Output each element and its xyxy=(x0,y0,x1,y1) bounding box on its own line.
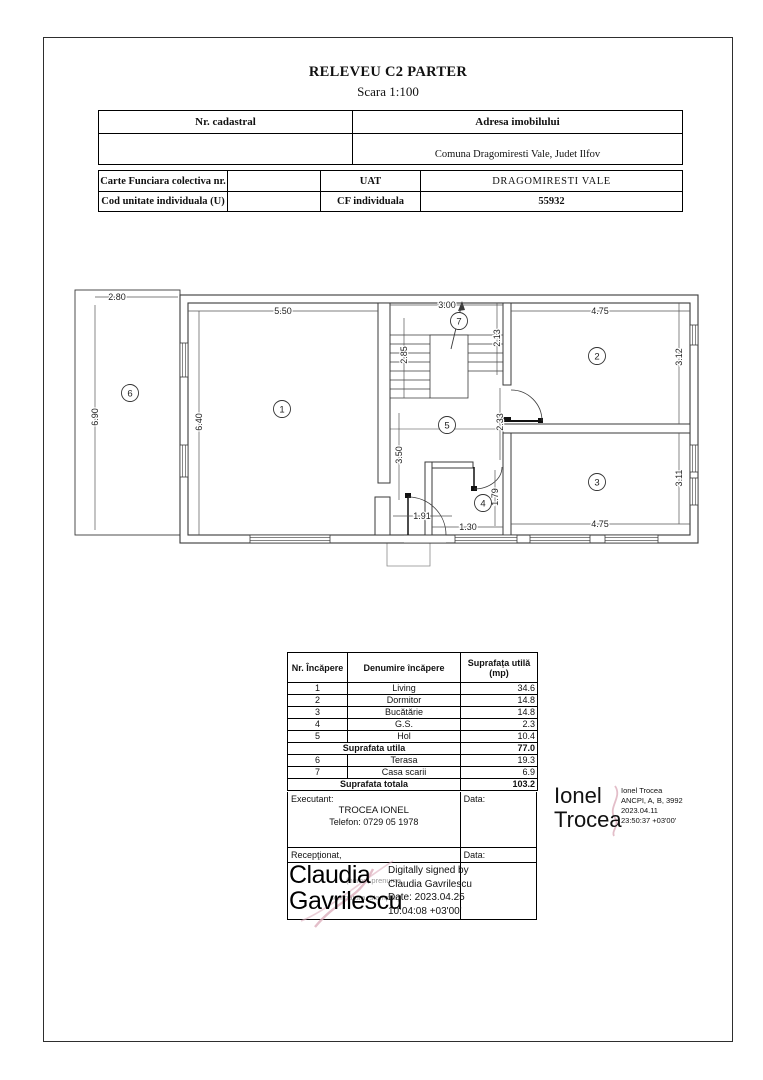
ionel-detail-line: 2023.04.11 xyxy=(621,806,683,816)
entrance-step xyxy=(387,543,430,566)
table-row: 3Bucătărie14.8 xyxy=(288,707,538,719)
cell-nr: 7 xyxy=(288,767,348,779)
dim-bedroom-height: 3.12 xyxy=(674,348,684,366)
cell-area: 10.4 xyxy=(461,731,538,743)
room-label-hall: 5 xyxy=(444,421,449,432)
cf-individuala-value: 55932 xyxy=(421,192,682,211)
uat-value: DRAGOMIRESTI VALE xyxy=(421,171,682,192)
cod-unitate-label: Cod unitate individuala (U) xyxy=(99,192,228,211)
ionel-detail-line: Ionel Trocea xyxy=(621,786,683,796)
ionel-line2: Trocea xyxy=(554,808,622,832)
cell-name: Casa scarii xyxy=(348,767,461,779)
ionel-detail-line: ANCPI, A, B, 3992 xyxy=(621,796,683,806)
title-block: RELEVEU C2 PARTER Scara 1:100 xyxy=(43,64,733,100)
subtotal-label: Suprafata utila xyxy=(288,743,461,755)
dim-terrace-width: 2.80 xyxy=(108,292,126,302)
dim-living-width: 5.50 xyxy=(274,306,292,316)
cell-nr: 5 xyxy=(288,731,348,743)
window-left-1 xyxy=(180,343,188,377)
claudia-digital-signature: Digitally signed by Claudia Gavrilescu D… xyxy=(388,864,548,918)
cell-area: 6.9 xyxy=(461,767,538,779)
window-right-3 xyxy=(690,478,698,505)
cell-area: 34.6 xyxy=(461,683,538,695)
door-gs xyxy=(471,467,502,491)
executant-cell: Executant: TROCEA IONEL Telefon: 0729 05… xyxy=(288,792,460,847)
executant-label: Executant: xyxy=(291,794,334,804)
window-bottom-2 xyxy=(455,535,517,543)
subtotal-row: Suprafata utila77.0 xyxy=(288,743,538,755)
table-row: 4G.S.2.3 xyxy=(288,719,538,731)
cell-nr: 4 xyxy=(288,719,348,731)
window-bottom-1 xyxy=(250,535,330,543)
room-labels: 1 2 3 4 5 6 7 xyxy=(122,313,606,512)
digital-line: Date: 2023.04.25 xyxy=(388,891,548,905)
cell-name: Terasa xyxy=(348,755,461,767)
col-header-name: Denumire încăpere xyxy=(348,653,461,683)
claudia-line2: Gavrilescu xyxy=(289,888,402,914)
nr-cadastral-header: Nr. cadastral xyxy=(99,111,353,134)
cell-name: Dormitor xyxy=(348,695,461,707)
table-row: 2Dormitor14.8 xyxy=(288,695,538,707)
col-header-area-line2: (mp) xyxy=(489,668,509,678)
window-bottom-3 xyxy=(530,535,590,543)
col-header-area-line1: Suprafața utilă xyxy=(468,658,531,668)
cf-table: Carte Funciara colectiva nr. UAT DRAGOMI… xyxy=(98,170,683,212)
digital-line: 10:04:08 +03'00' xyxy=(388,905,548,919)
table-row: 5Hol10.4 xyxy=(288,731,538,743)
ionel-detail-line: 23:50:37 +03'00' xyxy=(621,816,683,826)
window-bottom-4 xyxy=(605,535,658,543)
cell-nr: 3 xyxy=(288,707,348,719)
cell-area: 19.3 xyxy=(461,755,538,767)
cell-name: Living xyxy=(348,683,461,695)
staircase xyxy=(390,335,503,398)
digital-line: Digitally signed by xyxy=(388,864,548,878)
carte-funciara-label: Carte Funciara colectiva nr. xyxy=(99,171,228,192)
ionel-signature-text: Ionel Trocea xyxy=(554,784,622,832)
subtotal-value: 77.0 xyxy=(461,743,538,755)
dim-stairs-right: 2.13 xyxy=(492,329,502,347)
page-title: RELEVEU C2 PARTER xyxy=(43,64,733,81)
floor-plan: 2.80 6.90 5.50 6.40 3.00 2.85 2.13 4.75 … xyxy=(60,275,720,575)
dim-hall-upper: 2.33 xyxy=(495,413,505,431)
total-value: 103.2 xyxy=(461,779,538,791)
executant-row: Executant: TROCEA IONEL Telefon: 0729 05… xyxy=(287,792,537,848)
room-label-bedroom: 2 xyxy=(594,352,599,363)
cod-unitate-value xyxy=(228,192,321,211)
dim-living-height: 6.40 xyxy=(194,413,204,431)
cell-name: Hol xyxy=(348,731,461,743)
cf-individuala-label: CF individuala xyxy=(321,192,421,211)
cell-name: G.S. xyxy=(348,719,461,731)
total-label: Suprafata totala xyxy=(288,779,461,791)
dim-bedroom-width: 4.75 xyxy=(591,306,609,316)
room-label-gs: 4 xyxy=(480,499,485,510)
dimension-lines xyxy=(95,297,690,535)
nr-cadastral-value xyxy=(99,134,353,164)
window-right-2 xyxy=(690,445,698,472)
window-left-2 xyxy=(180,445,188,477)
ionel-line1: Ionel xyxy=(554,784,622,808)
room-label-stairs: 7 xyxy=(456,317,461,328)
cadastral-table: Nr. cadastral Adresa imobilului Comuna D… xyxy=(98,110,683,165)
cell-nr: 6 xyxy=(288,755,348,767)
dim-stairs-left: 2.85 xyxy=(399,346,409,364)
dim-kitchen-width: 4.75 xyxy=(591,519,609,529)
room-areas-table: Nr. Încăpere Denumire încăpere Suprafața… xyxy=(287,652,538,791)
total-row: Suprafata totala103.2 xyxy=(288,779,538,791)
cell-area: 14.8 xyxy=(461,695,538,707)
table-row: 1Living34.6 xyxy=(288,683,538,695)
executant-name: TROCEA IONEL xyxy=(288,805,460,816)
col-header-area: Suprafața utilă(mp) xyxy=(461,653,538,683)
uat-label: UAT xyxy=(321,171,421,192)
col-header-nr: Nr. Încăpere xyxy=(288,653,348,683)
page-subtitle: Scara 1:100 xyxy=(43,84,733,100)
receptionat-data-cell: Data: xyxy=(460,848,536,862)
cell-name: Bucătărie xyxy=(348,707,461,719)
cell-area: 2.3 xyxy=(461,719,538,731)
window-right-1 xyxy=(690,325,698,345)
door-bedroom xyxy=(503,386,544,423)
room-label-kitchen: 3 xyxy=(594,478,599,489)
dim-kitchen-height: 3.11 xyxy=(674,470,684,487)
claudia-signature-text: Claudia Gavrilescu xyxy=(289,862,402,914)
outer-walls xyxy=(180,295,698,543)
cell-area: 14.8 xyxy=(461,707,538,719)
table-row: 6Terasa19.3 xyxy=(288,755,538,767)
carte-funciara-value xyxy=(228,171,321,192)
cell-nr: 1 xyxy=(288,683,348,695)
room-label-living: 1 xyxy=(279,405,284,416)
ionel-signature-details: Ionel Trocea ANCPI, A, B, 3992 2023.04.1… xyxy=(621,786,683,826)
room-label-terrace: 6 xyxy=(127,389,132,400)
executant-data-cell: Data: xyxy=(460,792,536,847)
dim-entry-width: 1.91 xyxy=(413,511,431,521)
scanned-document-page: { "page": { "title": "RELEVEU C2 PARTER"… xyxy=(0,0,763,1080)
table-header-row: Nr. Încăpere Denumire încăpere Suprafața… xyxy=(288,653,538,683)
partition-walls xyxy=(375,303,690,535)
address-value: Comuna Dragomiresti Vale, Judet Ilfov xyxy=(353,134,682,164)
table-row: 7Casa scarii6.9 xyxy=(288,767,538,779)
dim-hall-lower: 3.50 xyxy=(394,446,404,464)
dim-stairs-width: 3.00 xyxy=(438,300,456,310)
cell-nr: 2 xyxy=(288,695,348,707)
executant-phone: Telefon: 0729 05 1978 xyxy=(288,817,460,827)
dim-terrace-height: 6.90 xyxy=(90,408,100,426)
dim-gs-width: 1.30 xyxy=(459,522,477,532)
address-header: Adresa imobilului xyxy=(353,111,682,134)
digital-line: Claudia Gavrilescu xyxy=(388,878,548,892)
claudia-line1: Claudia xyxy=(289,862,402,888)
